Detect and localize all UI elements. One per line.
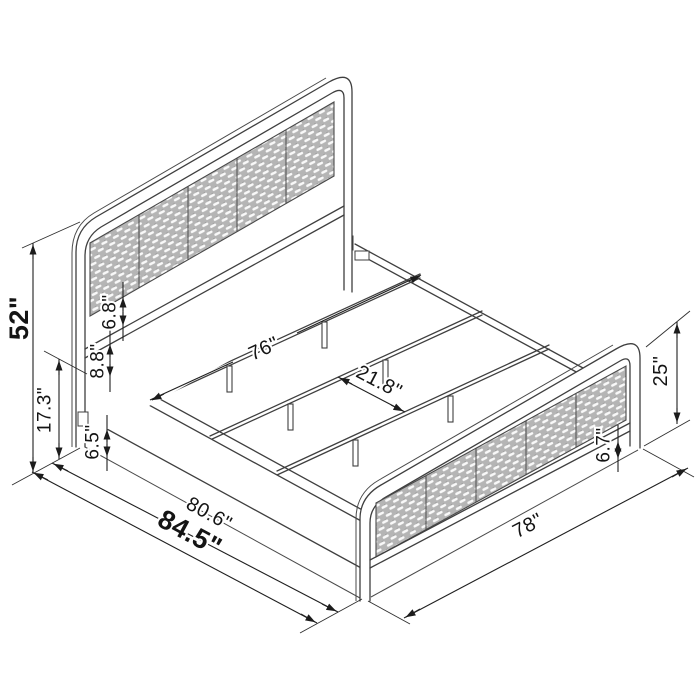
dim-label-footboard-height: 25" [650,356,672,387]
dim-label-footboard-clearance: 6.7" [594,427,615,462]
dim-label-slat-spacing: 21.8" [352,361,405,403]
dim-label-panel-gap: 6.8" [100,294,121,329]
dim-label-rail-gap: 8.8" [88,343,109,378]
slat-support-leg [288,404,293,430]
dim-label-frame-height: 17.3" [35,387,56,433]
slat-support-leg [353,440,358,466]
dim-label-clearance: 6.5" [83,424,104,459]
rail-bracket [355,251,369,260]
slat-support-leg [448,396,453,422]
dim-label-headboard-height: 52" [4,296,34,340]
headboard [72,77,352,447]
slat-support-leg [227,366,232,392]
diagram-canvas: 52" 17.3" 6.8" 8.8" 6.5" 76" 21.8" 80.6"… [0,0,700,700]
slat-support-leg [322,322,327,348]
leg-bracket [78,412,88,426]
bed-dimension-diagram: 52" 17.3" 6.8" 8.8" 6.5" 76" 21.8" 80.6"… [0,0,700,700]
